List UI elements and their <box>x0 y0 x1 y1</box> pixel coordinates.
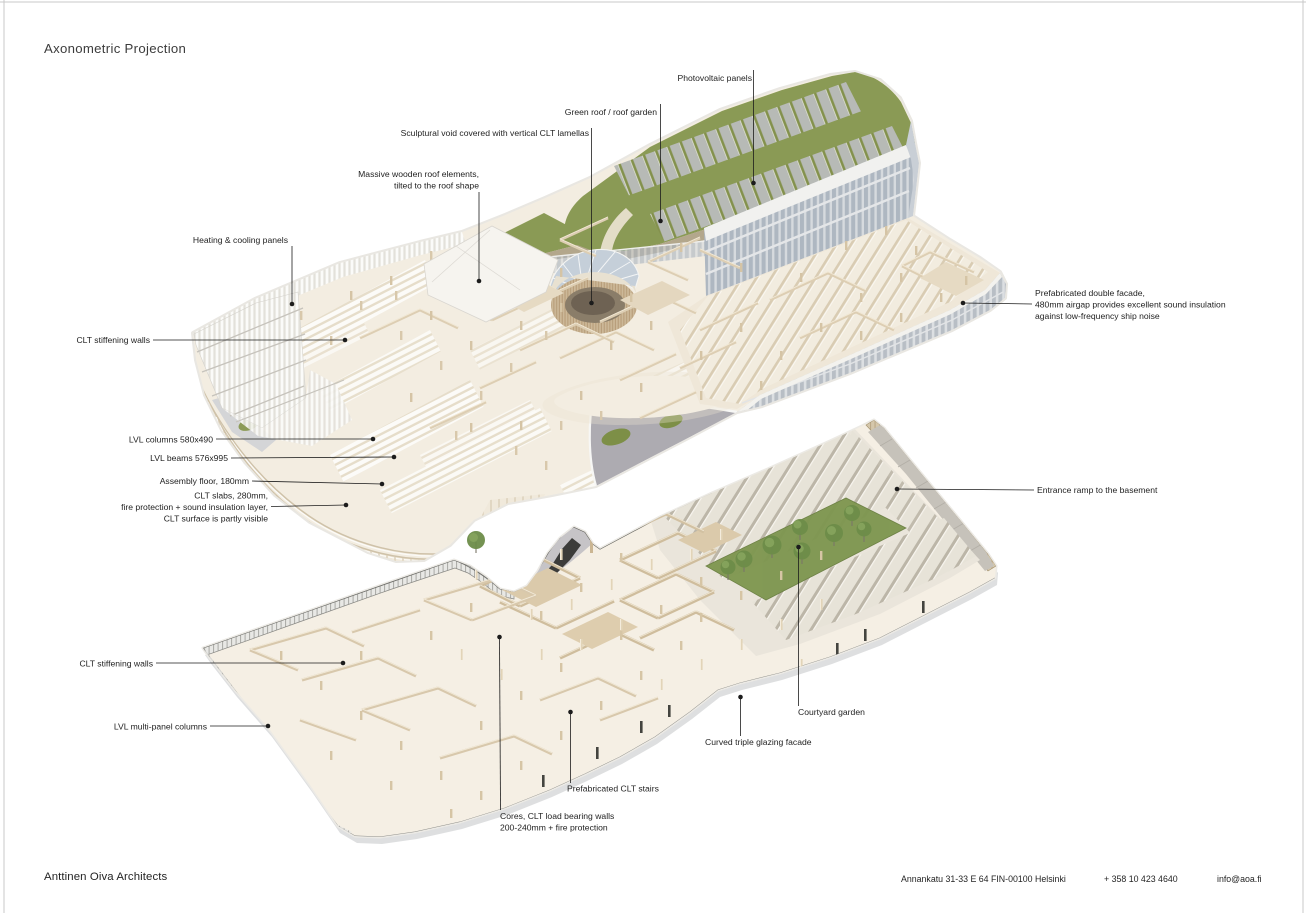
svg-text:CLT stiffening walls: CLT stiffening walls <box>79 659 153 669</box>
svg-text:Heating & cooling panels: Heating & cooling panels <box>193 235 288 245</box>
svg-text:Axonometric Projection: Axonometric Projection <box>44 41 186 56</box>
svg-text:CLT slabs, 280mm,: CLT slabs, 280mm, <box>194 491 268 501</box>
svg-text:200-240mm + fire protection: 200-240mm + fire protection <box>500 823 608 833</box>
svg-text:+ 358 10 423 4640: + 358 10 423 4640 <box>1104 874 1178 884</box>
svg-text:LVL beams 576x995: LVL beams 576x995 <box>150 453 228 463</box>
svg-text:against low-frequency ship noi: against low-frequency ship noise <box>1035 311 1160 321</box>
svg-text:Anttinen Oiva Architects: Anttinen Oiva Architects <box>44 871 168 883</box>
svg-text:LVL columns 580x490: LVL columns 580x490 <box>129 435 213 445</box>
svg-text:Curved triple glazing facade: Curved triple glazing facade <box>705 737 812 747</box>
svg-text:Massive wooden roof elements,: Massive wooden roof elements, <box>358 169 479 179</box>
svg-text:Annankatu 31-33 E 64 FIN-00100: Annankatu 31-33 E 64 FIN-00100 Helsinki <box>901 874 1066 884</box>
svg-text:Prefabricated double facade,: Prefabricated double facade, <box>1035 288 1145 298</box>
svg-text:Entrance ramp to the basement: Entrance ramp to the basement <box>1037 485 1158 495</box>
svg-text:Assembly floor, 180mm: Assembly floor, 180mm <box>160 476 249 486</box>
svg-text:Green roof / roof garden: Green roof / roof garden <box>565 107 657 117</box>
svg-text:info@aoa.fi: info@aoa.fi <box>1217 874 1262 884</box>
svg-text:480mm airgap provides excellen: 480mm airgap provides excellent sound in… <box>1035 300 1226 310</box>
svg-text:Photovoltaic panels: Photovoltaic panels <box>677 73 752 83</box>
svg-text:Prefabricated CLT stairs: Prefabricated CLT stairs <box>567 784 659 794</box>
svg-text:fire protection + sound insula: fire protection + sound insulation layer… <box>121 502 268 512</box>
svg-text:tilted to the roof shape: tilted to the roof shape <box>394 181 479 191</box>
svg-text:LVL multi-panel columns: LVL multi-panel columns <box>114 722 207 732</box>
svg-text:Sculptural void covered with v: Sculptural void covered with vertical CL… <box>401 128 589 138</box>
svg-text:Courtyard garden: Courtyard garden <box>798 707 865 717</box>
svg-text:CLT surface is partly visible: CLT surface is partly visible <box>164 514 268 524</box>
svg-text:Cores, CLT load bearing walls: Cores, CLT load bearing walls <box>500 811 614 821</box>
svg-text:CLT stiffening walls: CLT stiffening walls <box>76 335 150 345</box>
